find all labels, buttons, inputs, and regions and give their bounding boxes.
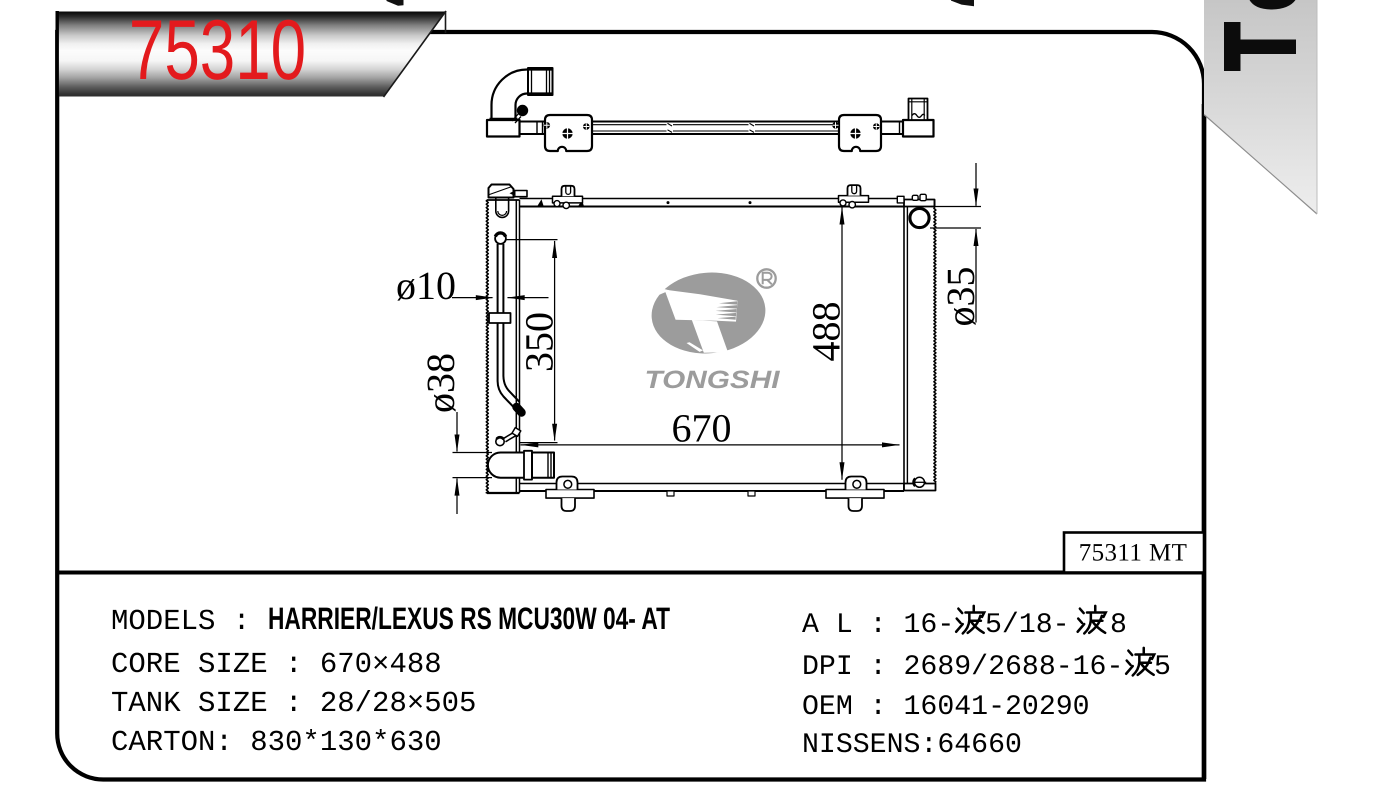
svg-text:ø35: ø35 bbox=[938, 267, 983, 327]
svg-text:CORE SIZE : 670×488: CORE SIZE : 670×488 bbox=[111, 648, 442, 681]
svg-text:OEM : 16041-20290: OEM : 16041-20290 bbox=[802, 692, 1090, 723]
svg-text:5/18-: 5/18- bbox=[985, 610, 1070, 641]
svg-text:ø38: ø38 bbox=[418, 353, 463, 413]
svg-text:CARTON: 830*130*630: CARTON: 830*130*630 bbox=[111, 726, 442, 759]
svg-text:MODELS :: MODELS : bbox=[111, 605, 250, 638]
svg-text:670: 670 bbox=[672, 406, 732, 451]
svg-text:488: 488 bbox=[804, 302, 849, 362]
svg-text:TANK SIZE : 28/28×505: TANK SIZE : 28/28×505 bbox=[111, 687, 476, 720]
svg-text:5: 5 bbox=[1154, 652, 1171, 683]
svg-text:DPI : 2689/2688-16-: DPI : 2689/2688-16- bbox=[802, 652, 1123, 683]
svg-text:75310: 75310 bbox=[129, 3, 306, 98]
svg-text:ø10: ø10 bbox=[396, 263, 456, 308]
svg-text:350: 350 bbox=[517, 312, 562, 372]
svg-text:HARRIER/LEXUS RS MCU30W 04- AT: HARRIER/LEXUS RS MCU30W 04- AT bbox=[268, 601, 670, 636]
svg-text:8: 8 bbox=[1110, 610, 1127, 641]
svg-text:A L : 16-: A L : 16- bbox=[802, 610, 954, 641]
svg-text:NISSENS:64660: NISSENS:64660 bbox=[802, 730, 1022, 761]
svg-text:TONGSHI: TONGSHI bbox=[645, 366, 781, 394]
svg-text:75311 MT: 75311 MT bbox=[1079, 540, 1188, 567]
